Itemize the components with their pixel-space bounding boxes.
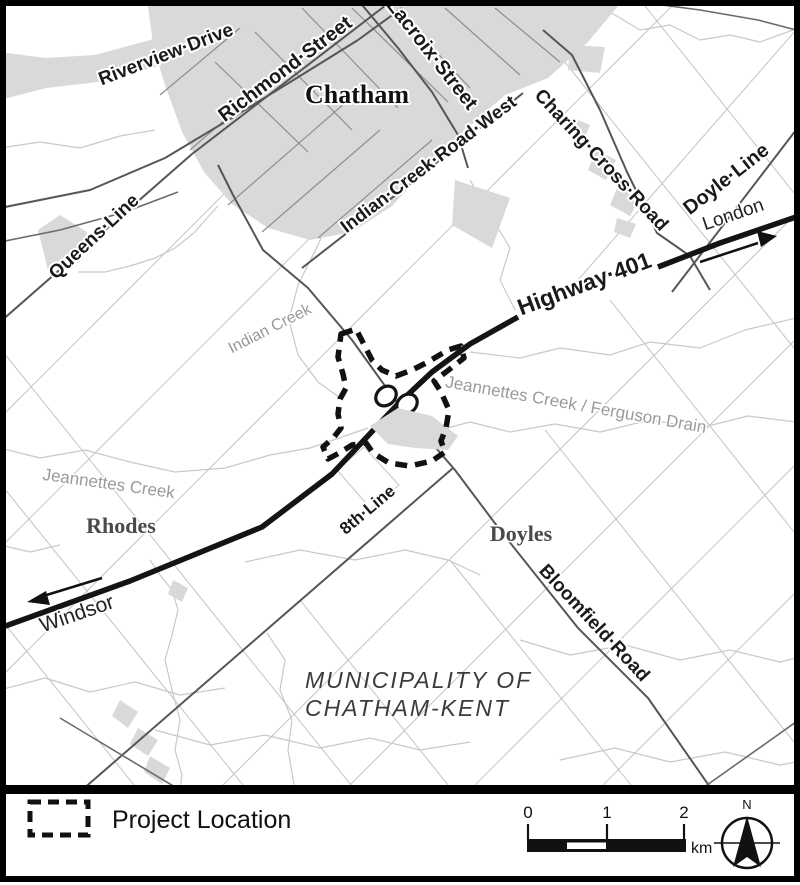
scale-tick-1-label: 1 — [602, 803, 611, 822]
chatham-label: Chatham — [305, 80, 409, 109]
north-label: N — [742, 797, 751, 812]
scale-bar-rect — [527, 839, 686, 852]
location-map: Riverview·Drive Richmond·Street Chatham … — [0, 0, 800, 885]
scale-unit-label: km — [691, 840, 712, 857]
rhodes-label: Rhodes — [86, 513, 156, 538]
legend-bar: Project Location 0 1 2 km N — [3, 791, 797, 879]
municipality-label-line1: MUNICIPALITY OF — [305, 667, 532, 693]
scale-bar-white-segment — [567, 843, 606, 850]
doyles-label: Doyles — [490, 521, 553, 546]
scale-tick-0-label: 0 — [523, 803, 532, 822]
project-location-legend-label: Project Location — [112, 806, 291, 834]
municipality-label-line2: CHATHAM-KENT — [305, 695, 510, 721]
scale-tick-2-label: 2 — [679, 803, 688, 822]
